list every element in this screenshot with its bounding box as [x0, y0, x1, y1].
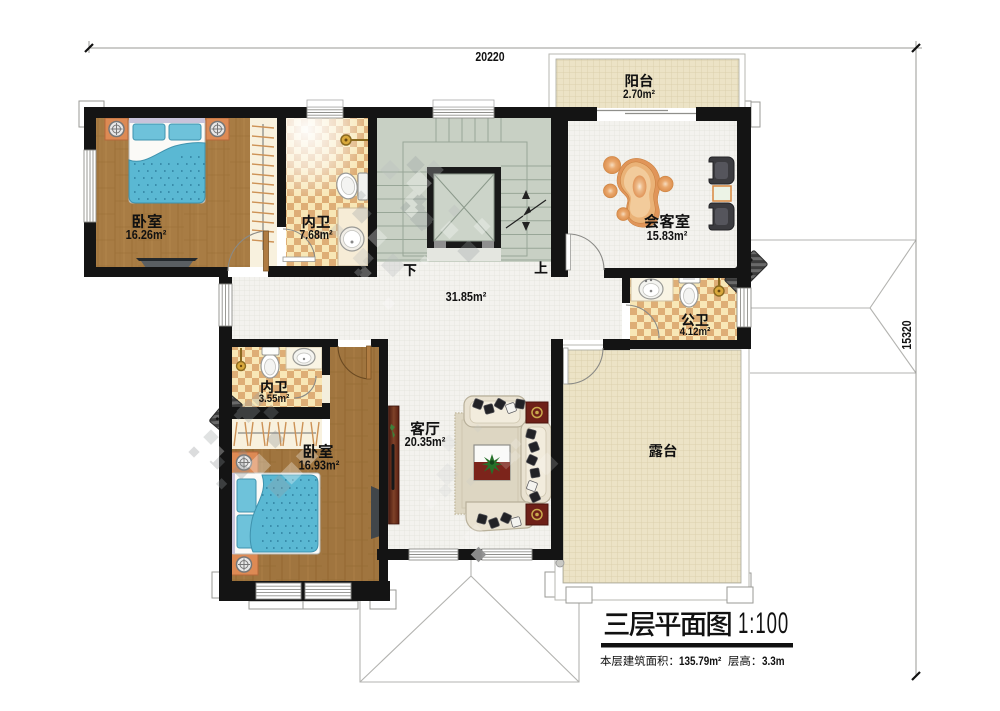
svg-text:7.68m²: 7.68m²	[299, 229, 332, 242]
svg-text:135.79m²: 135.79m²	[679, 655, 722, 668]
svg-text:20.35m²: 20.35m²	[405, 434, 446, 449]
svg-text:3.55m²: 3.55m²	[259, 392, 290, 405]
svg-text:15320: 15320	[901, 320, 914, 349]
svg-text:2.70m²: 2.70m²	[623, 88, 655, 101]
svg-text:1:100: 1:100	[738, 607, 789, 641]
svg-text:16.93m²: 16.93m²	[299, 458, 340, 473]
svg-text:15.83m²: 15.83m²	[647, 228, 688, 243]
svg-text:4.12m²: 4.12m²	[680, 325, 711, 338]
svg-text:31.85m²: 31.85m²	[446, 289, 487, 304]
svg-text:20220: 20220	[475, 51, 504, 64]
svg-text:16.26m²: 16.26m²	[126, 227, 167, 242]
svg-text:3.3m: 3.3m	[762, 655, 785, 668]
